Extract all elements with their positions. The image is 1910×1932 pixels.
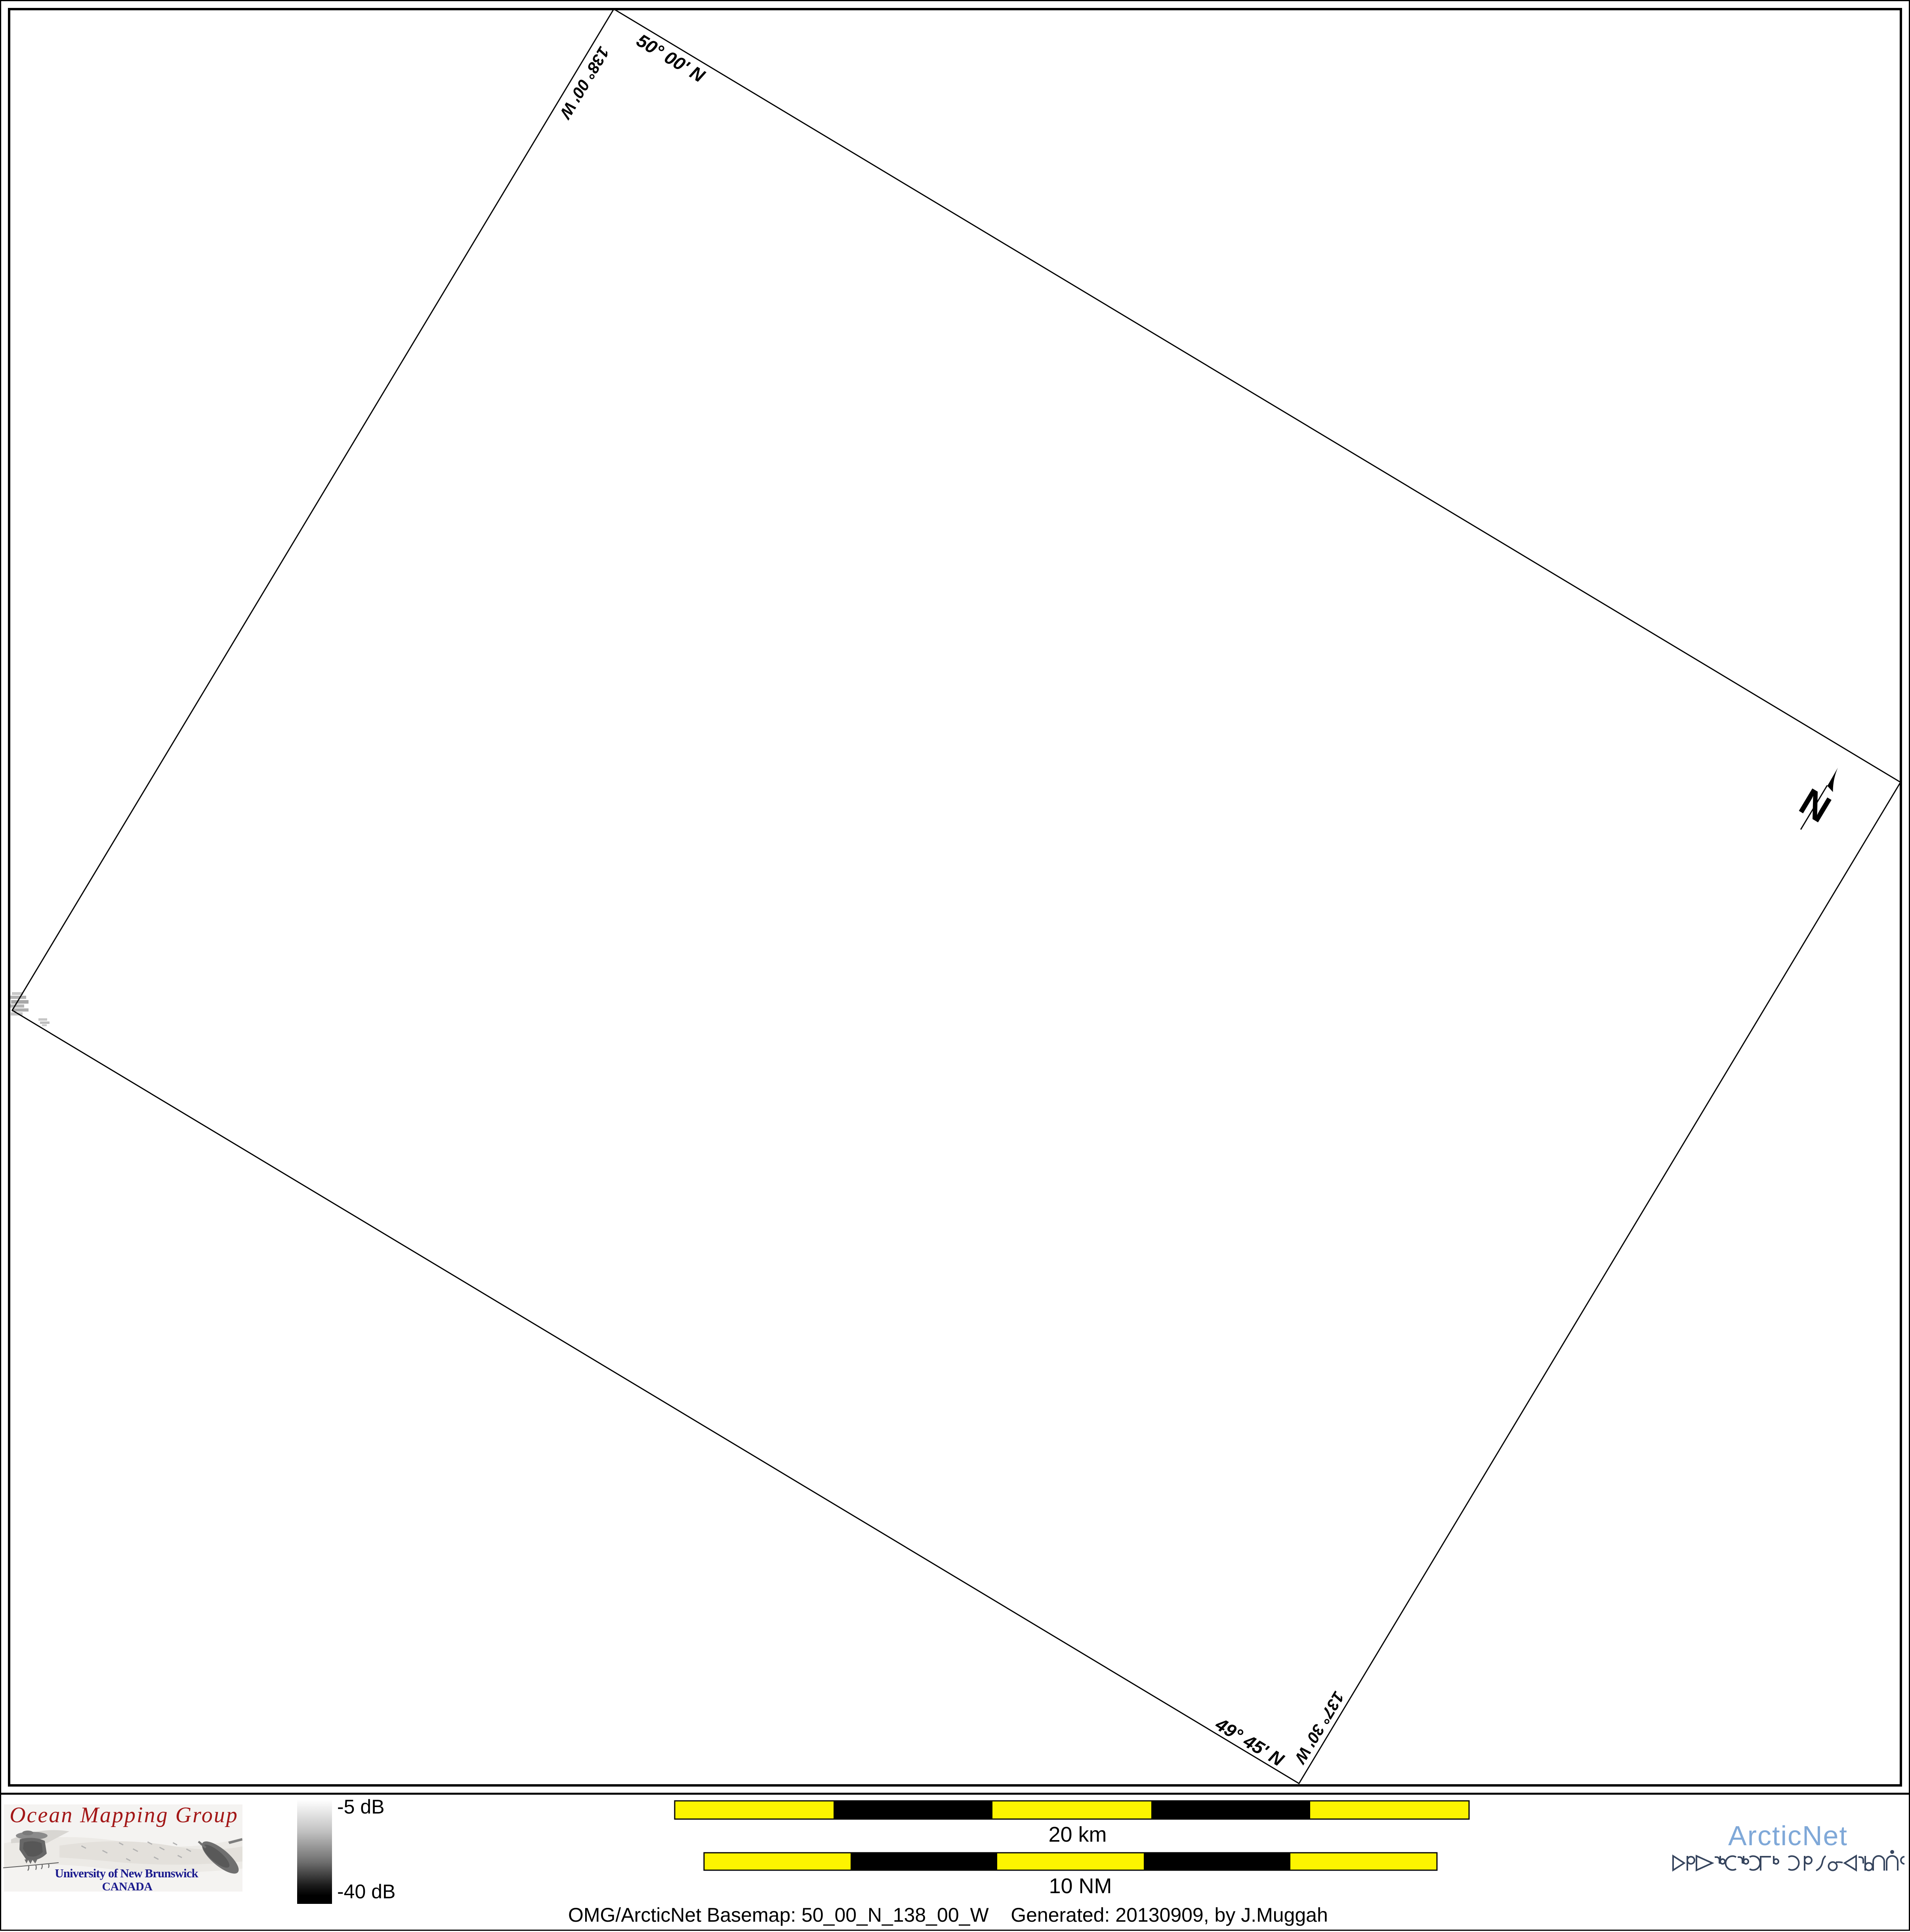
svg-text:Ocean Mapping Group: Ocean Mapping Group xyxy=(10,1803,239,1827)
svg-text:ArcticNet: ArcticNet xyxy=(1728,1820,1848,1851)
svg-text:10 NM: 10 NM xyxy=(1049,1874,1112,1898)
svg-text:OMG/ArcticNet Basemap: 50_00_N: OMG/ArcticNet Basemap: 50_00_N_138_00_W … xyxy=(568,1904,1328,1926)
svg-text:20 km: 20 km xyxy=(1048,1823,1107,1846)
svg-text:-40 dB: -40 dB xyxy=(337,1880,395,1903)
svg-text:University of New Brunswick: University of New Brunswick xyxy=(55,1866,198,1880)
svg-text:-5 dB: -5 dB xyxy=(337,1796,385,1818)
svg-text:CANADA: CANADA xyxy=(102,1880,153,1893)
